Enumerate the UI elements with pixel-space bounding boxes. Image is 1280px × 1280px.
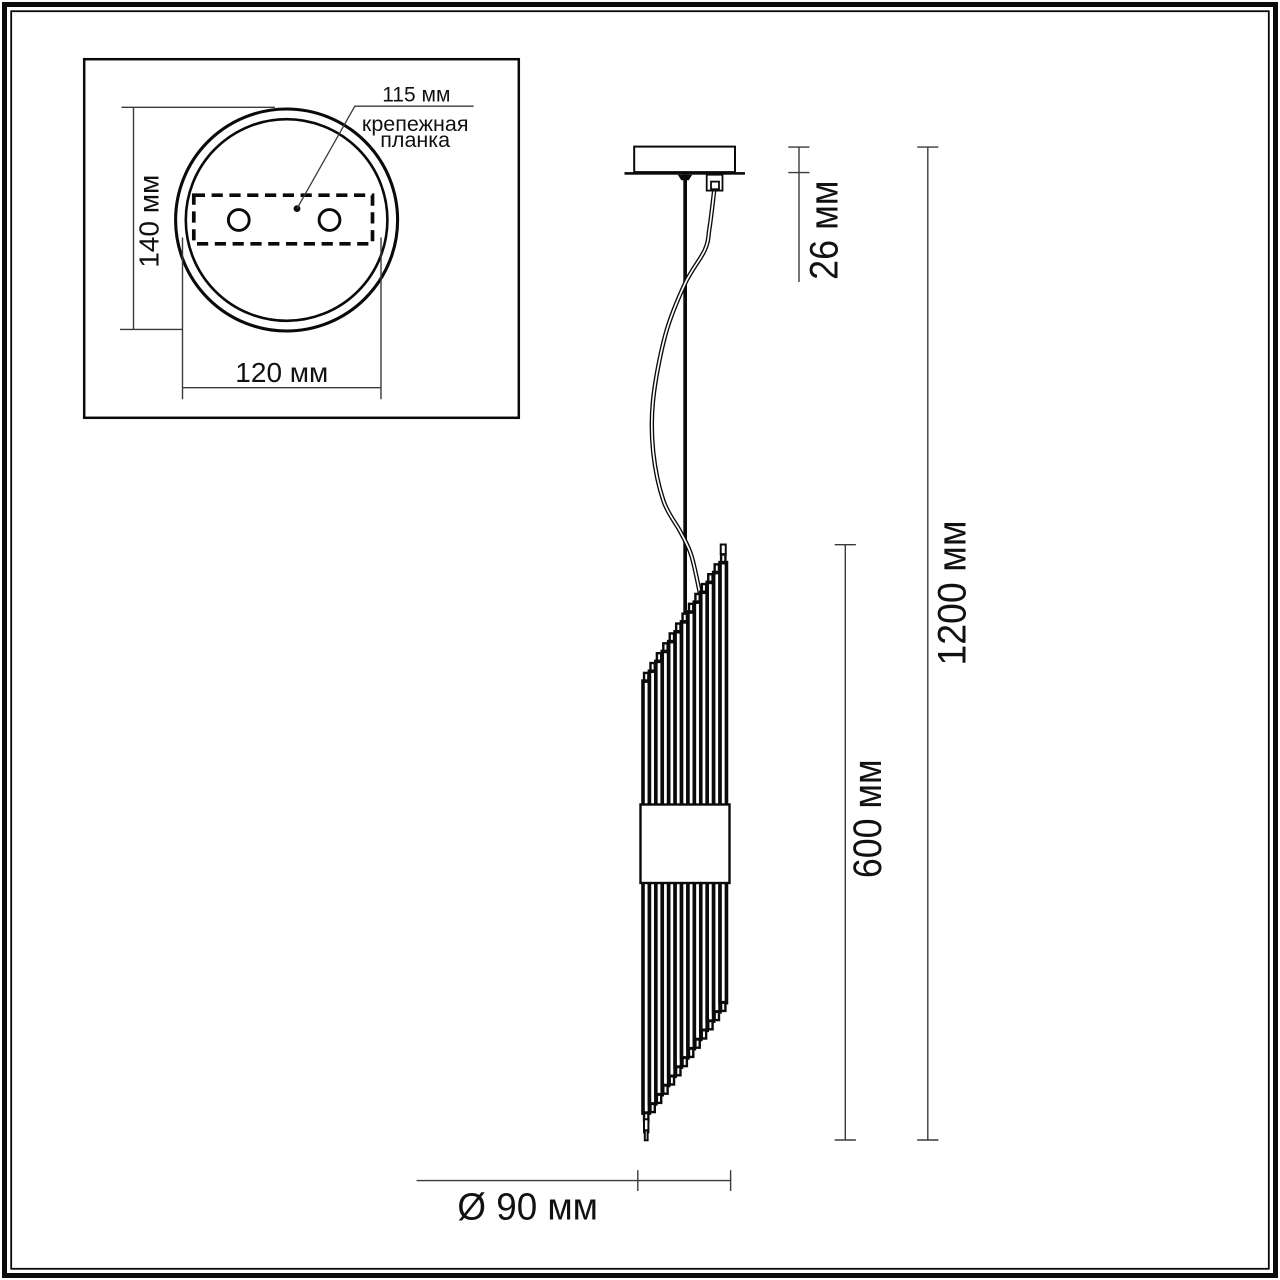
svg-text:Ø 90 мм: Ø 90 мм [457,1186,598,1228]
svg-text:600 мм: 600 мм [846,759,890,878]
svg-text:планка: планка [380,128,450,152]
svg-text:115 мм: 115 мм [382,83,450,106]
svg-text:140 мм: 140 мм [134,175,165,268]
svg-text:1200 мм: 1200 мм [930,520,974,665]
svg-text:26 мм: 26 мм [803,181,847,280]
svg-text:120 мм: 120 мм [235,357,328,388]
